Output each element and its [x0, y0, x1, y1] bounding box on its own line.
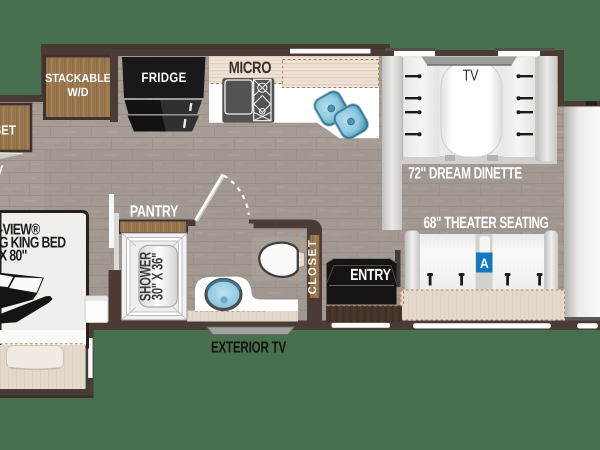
svg-text:ENTRY: ENTRY — [350, 266, 391, 284]
svg-text:SET: SET — [0, 123, 16, 138]
svg-text:MICRO: MICRO — [229, 58, 271, 77]
svg-text:W/D: W/D — [68, 86, 89, 99]
svg-text:FRIDGE: FRIDGE — [141, 71, 186, 85]
svg-text:A: A — [480, 255, 489, 271]
svg-text:X 80": X 80" — [0, 246, 27, 264]
svg-text:PANTRY: PANTRY — [130, 202, 179, 220]
svg-text:72" DREAM DINETTE: 72" DREAM DINETTE — [408, 163, 522, 182]
svg-text:V: V — [0, 163, 4, 178]
svg-text:68" THEATER SEATING: 68" THEATER SEATING — [423, 213, 548, 232]
svg-text:STACKABLE: STACKABLE — [45, 72, 111, 85]
svg-text:TV: TV — [463, 66, 480, 84]
svg-text:EXTERIOR TV: EXTERIOR TV — [211, 339, 287, 357]
svg-text:30" X 36": 30" X 36" — [150, 253, 167, 300]
svg-text:CLOSET: CLOSET — [307, 239, 319, 295]
